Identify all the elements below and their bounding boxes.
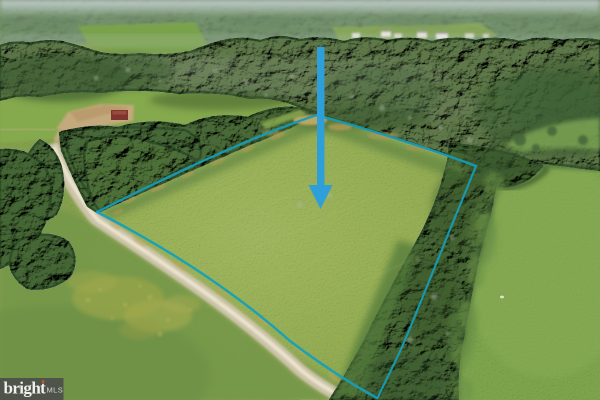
svg-text:bright: bright [4, 379, 47, 398]
svg-text:MLS: MLS [47, 386, 64, 395]
